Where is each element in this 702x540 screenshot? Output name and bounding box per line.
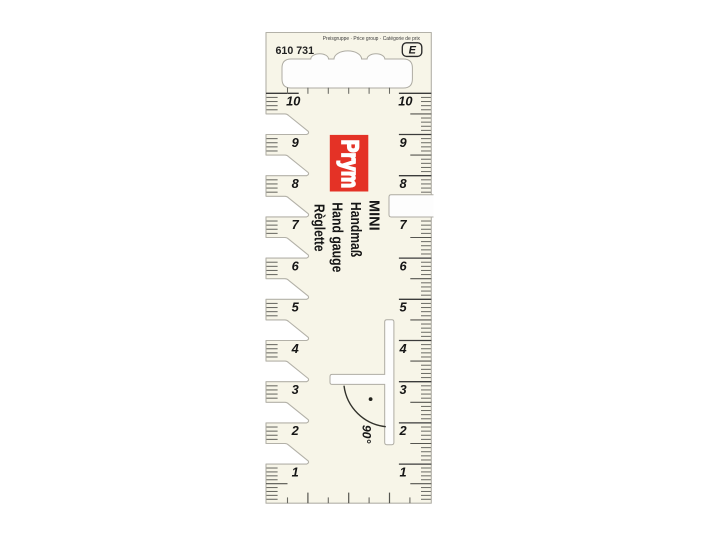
svg-text:1: 1 [399, 464, 406, 479]
svg-text:90°: 90° [359, 425, 373, 444]
svg-text:Preisgruppe · Price group · Ca: Preisgruppe · Price group · Catégorie de… [323, 36, 421, 42]
svg-text:610 731: 610 731 [276, 45, 315, 57]
svg-text:E: E [409, 45, 417, 57]
svg-text:6: 6 [292, 258, 300, 273]
svg-text:Règlette: Règlette [310, 204, 326, 252]
svg-text:1: 1 [292, 464, 299, 479]
svg-text:7: 7 [292, 217, 300, 232]
svg-text:10: 10 [286, 94, 300, 109]
svg-text:Prym: Prym [336, 140, 363, 189]
svg-text:7: 7 [399, 217, 407, 232]
svg-text:Handmaß: Handmaß [347, 202, 363, 257]
svg-text:10: 10 [398, 94, 412, 109]
svg-text:4: 4 [291, 341, 299, 356]
svg-text:Hand gauge: Hand gauge [329, 202, 345, 272]
svg-text:9: 9 [292, 135, 300, 150]
svg-text:6: 6 [399, 258, 407, 273]
svg-text:5: 5 [399, 300, 407, 315]
svg-text:8: 8 [399, 176, 407, 191]
svg-text:2: 2 [398, 423, 406, 438]
svg-text:4: 4 [398, 341, 406, 356]
svg-text:5: 5 [292, 300, 300, 315]
svg-text:9: 9 [399, 135, 407, 150]
svg-text:MINI: MINI [366, 200, 382, 231]
svg-text:2: 2 [291, 423, 299, 438]
svg-text:3: 3 [292, 382, 299, 397]
svg-text:8: 8 [292, 176, 300, 191]
svg-text:3: 3 [399, 382, 406, 397]
